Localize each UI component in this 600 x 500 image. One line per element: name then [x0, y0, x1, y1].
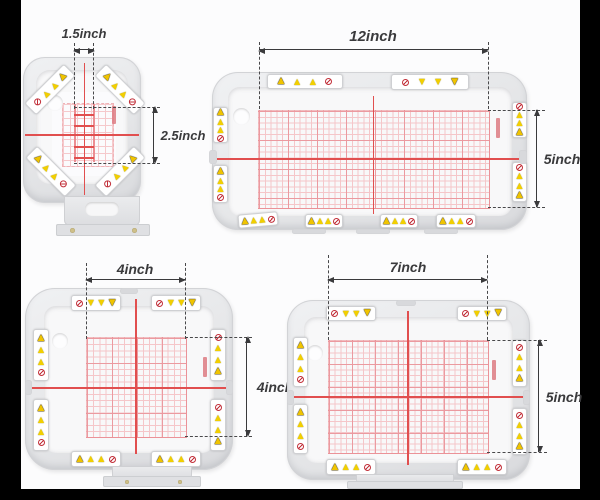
dim-arrow-line: [86, 279, 185, 280]
arrow-down-icon: [534, 201, 540, 208]
warning-triangle-icon: ▲: [516, 442, 523, 451]
grid-column-right: [93, 104, 95, 162]
prohibition-icon: [128, 97, 138, 107]
prohibition-icon: [333, 218, 340, 225]
screw: [70, 228, 75, 233]
warning-triangle-icon: ▲: [250, 216, 257, 225]
warning-triangle-icon: ▲: [178, 455, 184, 463]
prohibition-icon: [516, 344, 523, 351]
arrow-left-icon: [73, 48, 80, 54]
warning-triangle-icon: ▲: [215, 426, 221, 434]
warning-triangle-icon: ▲: [392, 217, 398, 225]
warning-triangle-icon: ▼: [364, 309, 371, 318]
prohibition-icon: [495, 464, 502, 471]
prohibition-icon: [466, 218, 473, 225]
dim-extension-line: [86, 263, 87, 339]
warning-triangle-icon: ▲: [38, 416, 44, 424]
warning-triangle-icon: ▲: [310, 78, 316, 86]
screw: [178, 480, 182, 484]
warning-triangle-icon: ▲: [516, 172, 522, 180]
warning-label: ▼▼▼: [71, 295, 121, 311]
dim-arrow-line: [153, 107, 154, 163]
warning-triangle-icon: ▲: [215, 367, 222, 376]
warning-triangle-icon: ▲: [217, 185, 223, 193]
crosshair-vertical: [373, 96, 375, 214]
warning-triangle-icon: ▲: [38, 428, 44, 436]
warning-triangle-icon: ▲: [215, 437, 222, 446]
dim-arrow-line: [246, 337, 247, 436]
prohibition-icon: [76, 300, 83, 307]
prohibition-icon: [516, 412, 523, 419]
hoop-large-grid: [258, 110, 490, 209]
warning-triangle-icon: ▼: [343, 310, 349, 318]
warning-triangle-icon: ▼: [98, 299, 104, 307]
warning-triangle-icon: ▲: [297, 341, 304, 350]
warning-triangle-icon: ▲: [215, 344, 221, 352]
warning-triangle-icon: ▲: [331, 463, 338, 472]
dim-width-label: 1.5inch: [54, 26, 114, 41]
dim-arrow-line: [536, 110, 537, 207]
warning-triangle-icon: ▲: [400, 217, 406, 225]
warning-triangle-icon: ▲: [449, 217, 455, 225]
warning-label: ▲▲▲: [512, 162, 527, 202]
warning-triangle-icon: ▲: [516, 119, 522, 127]
thumb-hole: [307, 345, 323, 361]
dim-arrow-line: [328, 279, 487, 280]
frame-notch: [287, 390, 294, 405]
warning-triangle-icon: ▲: [111, 170, 121, 180]
arrow-down-icon: [537, 446, 543, 453]
prohibition-icon: [364, 464, 371, 471]
dim-extension-line: [487, 255, 488, 340]
arrow-up-icon: [245, 336, 251, 343]
mounting-base: [103, 476, 201, 487]
warning-triangle-icon: ▲: [474, 463, 480, 471]
warning-triangle-icon: ▲: [38, 358, 44, 366]
warning-triangle-icon: ▲: [168, 455, 174, 463]
frame-notch: [523, 390, 530, 405]
grid-column-left: [74, 104, 76, 162]
warning-label: ▲▲▲: [213, 165, 228, 203]
warning-label: ▲▲▲: [457, 459, 507, 475]
prohibition-icon: [408, 218, 415, 225]
prohibition-icon: [331, 310, 338, 317]
warning-label: ▼▼▼: [326, 306, 376, 321]
warning-triangle-icon: ▲: [119, 88, 129, 98]
crosshair-horizontal: [290, 396, 527, 398]
arrow-right-icon: [88, 48, 95, 54]
prohibition-icon: [32, 97, 42, 107]
prohibition-icon: [217, 135, 224, 142]
crosshair-horizontal: [28, 387, 230, 389]
mounting-base: [347, 481, 463, 489]
warning-triangle-icon: ▼: [109, 299, 116, 308]
warning-triangle-icon: ▼: [353, 310, 359, 318]
warning-triangle-icon: ▲: [457, 217, 463, 225]
warning-triangle-icon: ▲: [57, 71, 68, 82]
arrow-up-icon: [534, 109, 540, 116]
warning-label: ▲▲▲: [436, 214, 476, 228]
warning-triangle-icon: ▲: [297, 353, 303, 361]
frame-notch: [25, 380, 32, 395]
warning-triangle-icon: ▲: [308, 217, 315, 226]
warning-triangle-icon: ▲: [49, 80, 59, 90]
warning-label: ▲▲▲: [305, 214, 343, 228]
prohibition-icon: [215, 404, 222, 411]
dim-width-label: 4inch: [105, 261, 165, 277]
warning-triangle-icon: ▲: [325, 217, 331, 225]
warning-label: ▲▲▲: [326, 459, 376, 475]
prohibition-icon: [297, 443, 304, 450]
warning-triangle-icon: ▲: [439, 217, 446, 226]
dim-extension-line: [328, 255, 329, 340]
warning-label: ▲▲▲: [71, 451, 121, 467]
warning-label: ▲▲▲: [512, 408, 527, 455]
warning-triangle-icon: ▲: [516, 421, 522, 429]
model-marking: [492, 360, 496, 380]
warning-triangle-icon: ▲: [41, 88, 51, 98]
warning-triangle-icon: ▲: [353, 463, 359, 471]
warning-triangle-icon: ▼: [189, 299, 196, 308]
crosshair-horizontal: [215, 158, 524, 160]
frame-foot: [424, 229, 458, 234]
warning-triangle-icon: ▲: [516, 374, 523, 383]
prohibition-icon: [156, 300, 163, 307]
arrow-left-icon: [327, 277, 334, 283]
warning-triangle-icon: ▲: [516, 432, 522, 440]
warning-label: ▲▲▲: [293, 404, 308, 454]
warning-triangle-icon: ▲: [259, 215, 266, 224]
thumb-hole: [233, 108, 250, 125]
warning-triangle-icon: ▼: [435, 78, 441, 86]
prohibition-icon: [267, 215, 275, 223]
warning-label: ▲▲▲: [210, 399, 226, 451]
warning-label: ▲▲▲: [151, 451, 201, 467]
warning-triangle-icon: ▲: [297, 408, 304, 417]
warning-triangle-icon: ▲: [516, 353, 522, 361]
frame-notch: [120, 288, 138, 294]
dim-arrow-line: [74, 49, 94, 50]
warning-triangle-icon: ▼: [474, 310, 480, 318]
warning-label: ▲▲▲: [512, 102, 527, 138]
frame-foot: [292, 229, 326, 234]
warning-triangle-icon: ▲: [484, 463, 490, 471]
warning-triangle-icon: ▲: [317, 217, 323, 225]
warning-label: ▲▲▲: [512, 340, 527, 387]
warning-label: ▲▲▲: [33, 329, 49, 381]
arrow-right-icon: [482, 48, 489, 54]
arrow-left-icon: [258, 48, 265, 54]
prohibition-icon: [297, 376, 304, 383]
warning-triangle-icon: ▼: [88, 299, 94, 307]
warning-triangle-icon: ▼: [495, 309, 502, 318]
arrow-right-icon: [179, 277, 186, 283]
warning-triangle-icon: ▲: [50, 170, 60, 180]
dim-arrow-line: [538, 340, 539, 452]
frame-notch: [519, 150, 527, 164]
warning-triangle-icon: ▲: [516, 128, 523, 137]
warning-triangle-icon: ▲: [217, 126, 223, 134]
frame-foot: [356, 229, 390, 234]
warning-label: ▲▲▲: [267, 74, 343, 89]
warning-triangle-icon: ▲: [111, 80, 121, 90]
dim-extension-line: [74, 163, 160, 164]
prohibition-icon: [189, 456, 196, 463]
dim-extension-line: [185, 436, 252, 437]
warning-triangle-icon: ▲: [383, 217, 390, 226]
dim-extension-line: [185, 337, 252, 338]
prohibition-icon: [109, 456, 116, 463]
arrow-up-icon: [152, 106, 158, 113]
prohibition-icon: [325, 78, 332, 85]
warning-label: ▲▲▲: [293, 337, 308, 387]
dim-width-label: 7inch: [378, 259, 438, 275]
warning-triangle-icon: ▲: [38, 404, 45, 413]
warning-triangle-icon: ▲: [42, 162, 52, 172]
screw: [125, 480, 129, 484]
dim-arrow-line: [259, 49, 488, 50]
screw: [132, 228, 137, 233]
dim-height-label: 5inch: [544, 389, 584, 405]
warning-triangle-icon: ▲: [215, 356, 221, 364]
dim-extension-line: [185, 263, 186, 339]
prohibition-icon: [102, 179, 112, 189]
warning-label: ▲▲▲: [33, 399, 49, 451]
dim-height-label: 2.5inch: [158, 128, 208, 143]
warning-triangle-icon: ▲: [102, 71, 113, 82]
warning-triangle-icon: ▲: [294, 78, 300, 86]
crosshair-vertical: [407, 311, 409, 465]
warning-label: ▲▲▲: [213, 107, 228, 143]
crosshair-horizontal: [25, 134, 139, 136]
product-image: { "scene": { "description": "Magnetic em…: [0, 0, 600, 500]
prohibition-icon: [38, 369, 45, 376]
dim-height-label: 5inch: [542, 151, 582, 167]
crosshair-vertical: [84, 63, 86, 195]
warning-triangle-icon: ▼: [419, 78, 425, 86]
model-marking: [496, 118, 500, 138]
warning-triangle-icon: ▲: [38, 346, 44, 354]
warning-triangle-icon: ▲: [217, 167, 224, 176]
mounting-slot: [85, 202, 119, 216]
thumb-hole: [52, 333, 68, 349]
arrow-up-icon: [537, 339, 543, 346]
warning-triangle-icon: ▲: [76, 455, 83, 464]
warning-triangle-icon: ▲: [33, 153, 44, 164]
warning-triangle-icon: ▲: [297, 365, 303, 373]
frame-notch: [209, 150, 217, 164]
warning-label: ▲▲▲: [380, 214, 418, 228]
warning-triangle-icon: ▼: [178, 299, 184, 307]
arrow-down-icon: [245, 430, 251, 437]
warning-triangle-icon: ▲: [98, 455, 104, 463]
frame-notch: [226, 380, 233, 395]
warning-triangle-icon: ▲: [38, 334, 45, 343]
warning-label: ▼▼▼: [391, 74, 469, 90]
warning-triangle-icon: ▲: [516, 191, 523, 200]
warning-triangle-icon: ▲: [156, 455, 163, 464]
warning-triangle-icon: ▲: [516, 364, 522, 372]
dim-extension-line: [74, 107, 160, 108]
warning-triangle-icon: ▲: [516, 182, 522, 190]
warning-triangle-icon: ▲: [215, 414, 221, 422]
warning-triangle-icon: ▲: [278, 77, 285, 86]
warning-triangle-icon: ▲: [297, 432, 303, 440]
arrow-left-icon: [85, 277, 92, 283]
model-marking: [112, 106, 116, 124]
warning-triangle-icon: ▼: [451, 78, 458, 87]
model-marking: [203, 357, 207, 377]
prohibition-icon: [38, 439, 45, 446]
prohibition-icon: [402, 79, 409, 86]
warning-triangle-icon: ▲: [88, 455, 94, 463]
warning-triangle-icon: ▲: [241, 216, 249, 226]
warning-label: ▼▼▼: [151, 295, 201, 311]
dim-width-label: 12inch: [333, 28, 413, 45]
warning-triangle-icon: ▲: [462, 463, 469, 472]
warning-triangle-icon: ▼: [168, 299, 174, 307]
warning-label: ▼▼▼: [457, 306, 507, 321]
warning-triangle-icon: ▲: [343, 463, 349, 471]
arrow-down-icon: [152, 157, 158, 164]
prohibition-icon: [217, 194, 224, 201]
arrow-right-icon: [481, 277, 488, 283]
prohibition-icon: [462, 310, 469, 317]
warning-triangle-icon: ▲: [297, 420, 303, 428]
frame-notch: [396, 300, 416, 306]
crosshair-vertical: [135, 299, 137, 454]
prohibition-icon: [59, 179, 69, 189]
